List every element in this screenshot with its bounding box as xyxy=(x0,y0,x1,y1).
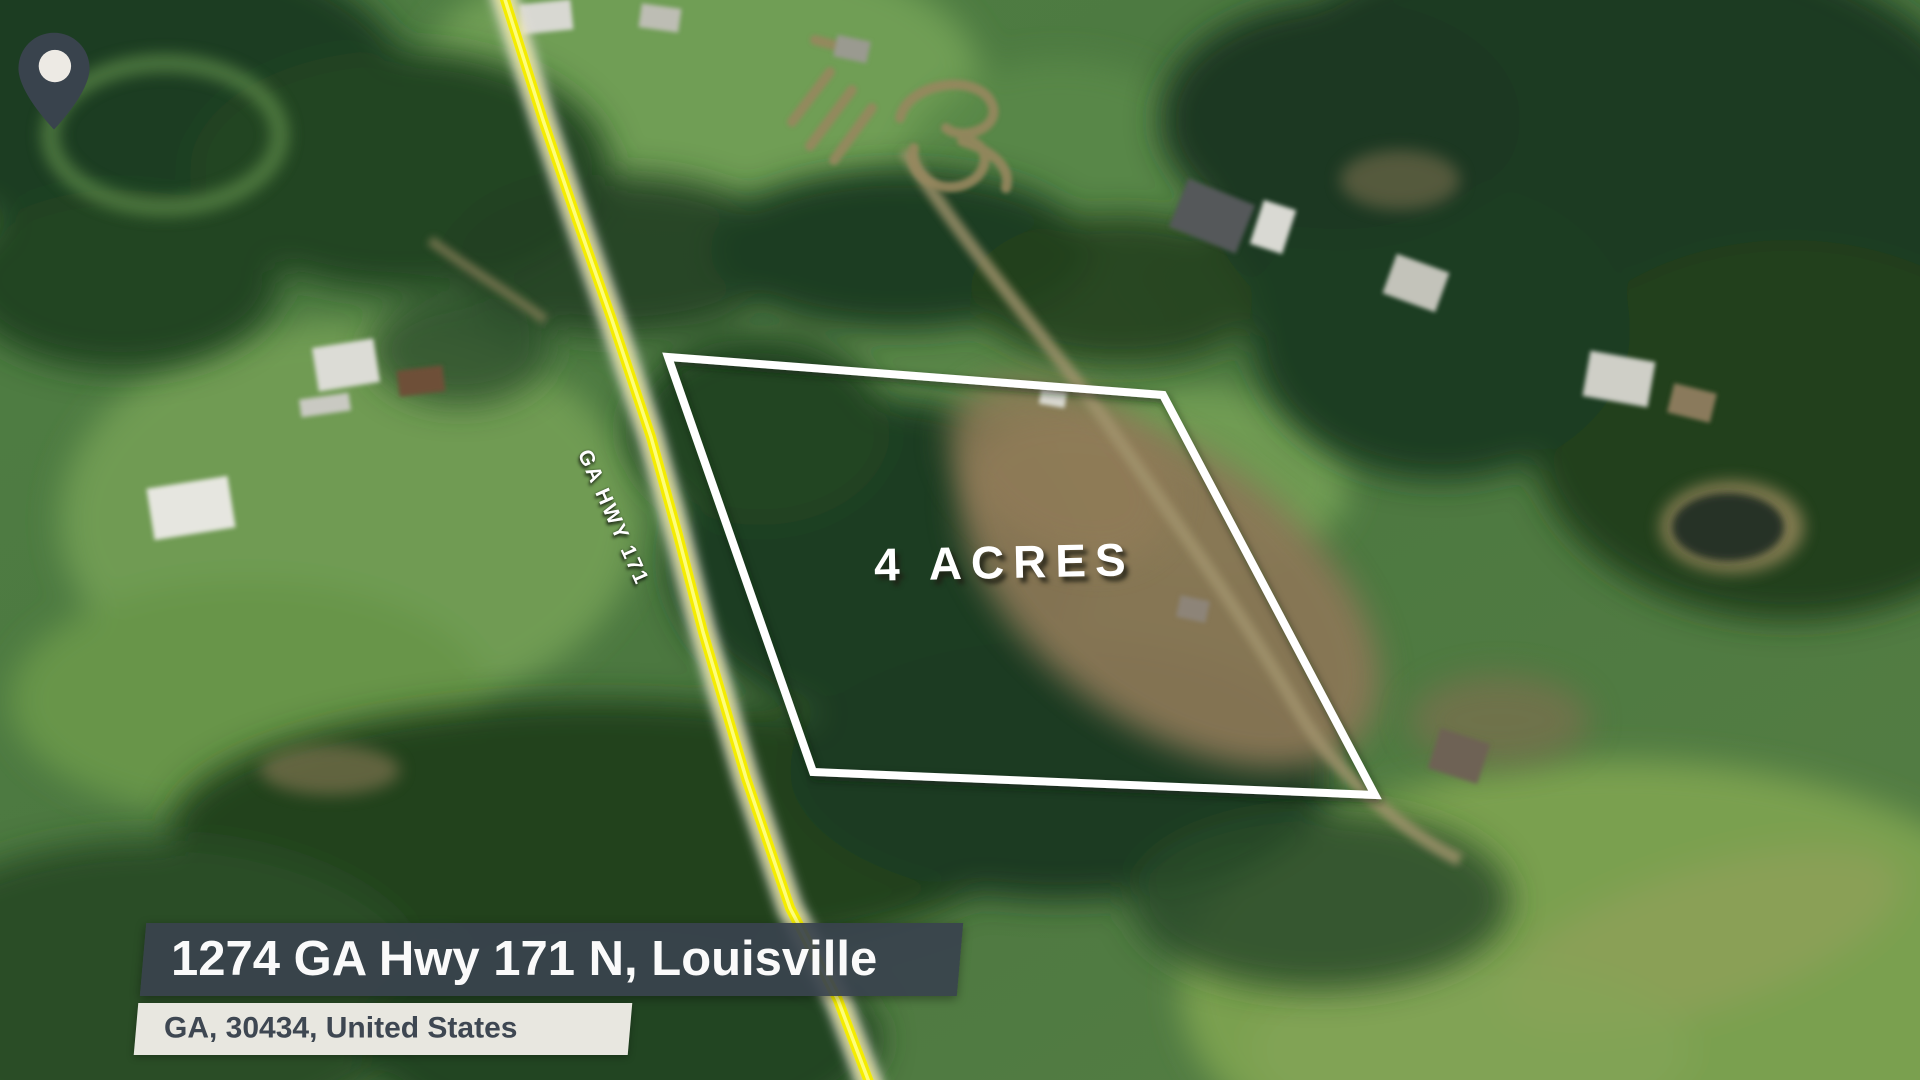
address-card-line1: 1274 GA Hwy 171 N, Louisville xyxy=(143,923,960,996)
location-text: GA, 30434, United States xyxy=(164,1011,517,1045)
address-text: 1274 GA Hwy 171 N, Louisville xyxy=(171,930,877,986)
acreage-label: 4 ACRES xyxy=(873,532,1135,591)
location-pin-icon xyxy=(0,0,108,160)
listing-map-image: GA HWY 171 4 ACRES 1274 GA Hwy 171 N, Lo… xyxy=(0,0,1920,1080)
address-card-line2: GA, 30434, United States xyxy=(136,1003,630,1055)
pond xyxy=(1660,481,1804,573)
